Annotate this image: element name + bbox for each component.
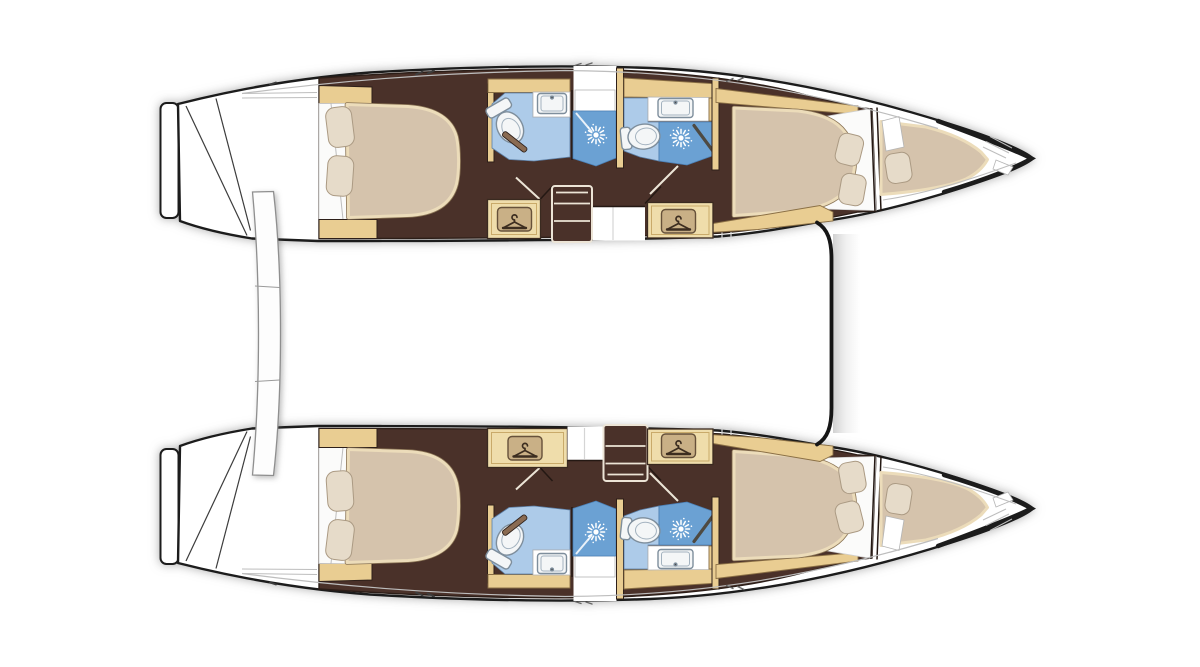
companionway-steps bbox=[604, 425, 648, 481]
sink-icon bbox=[538, 94, 567, 114]
pillow bbox=[326, 155, 355, 197]
aft-cabin-cabinet-top bbox=[319, 86, 372, 105]
aft-crossbeam bbox=[253, 192, 281, 476]
catamaran-layout-canvas bbox=[0, 0, 1200, 667]
forward-berth bbox=[734, 108, 855, 216]
saloon-landing bbox=[568, 427, 604, 462]
bridgedeck-shadow bbox=[833, 234, 860, 433]
catamaran-floorplan-svg bbox=[0, 0, 1200, 667]
saloon-landing bbox=[593, 207, 645, 241]
pillow bbox=[325, 106, 356, 149]
pillow bbox=[837, 172, 867, 207]
bulkhead bbox=[617, 68, 624, 168]
forward-shower-floor bbox=[659, 122, 712, 165]
pillow bbox=[884, 151, 913, 185]
aft-head bbox=[485, 66, 617, 166]
forward-bridgedeck-edge bbox=[817, 223, 860, 445]
shower-pan bbox=[575, 90, 615, 111]
transom-swim-platform bbox=[161, 103, 179, 218]
aft-shower-floor bbox=[573, 111, 616, 166]
companionway-steps bbox=[552, 186, 592, 242]
aft-cabin-cabinet-bottom bbox=[319, 220, 377, 239]
aft-head-counter bbox=[488, 79, 570, 93]
aft-berth bbox=[347, 105, 459, 218]
sink-icon bbox=[658, 99, 693, 118]
